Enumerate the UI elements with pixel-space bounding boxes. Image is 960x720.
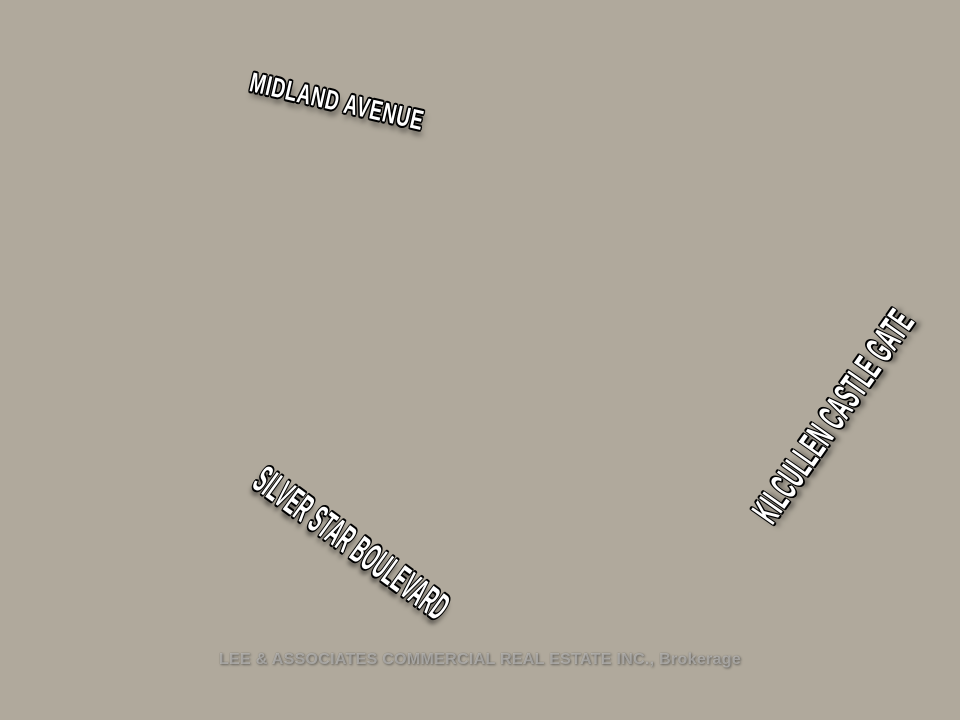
aerial-photo-canvas	[0, 0, 960, 720]
aerial-photo: MIDLAND AVENUE SILVER STAR BOULEVARD KIL…	[0, 0, 960, 720]
brokerage-watermark: LEE & ASSOCIATES COMMERCIAL REAL ESTATE …	[0, 651, 960, 669]
